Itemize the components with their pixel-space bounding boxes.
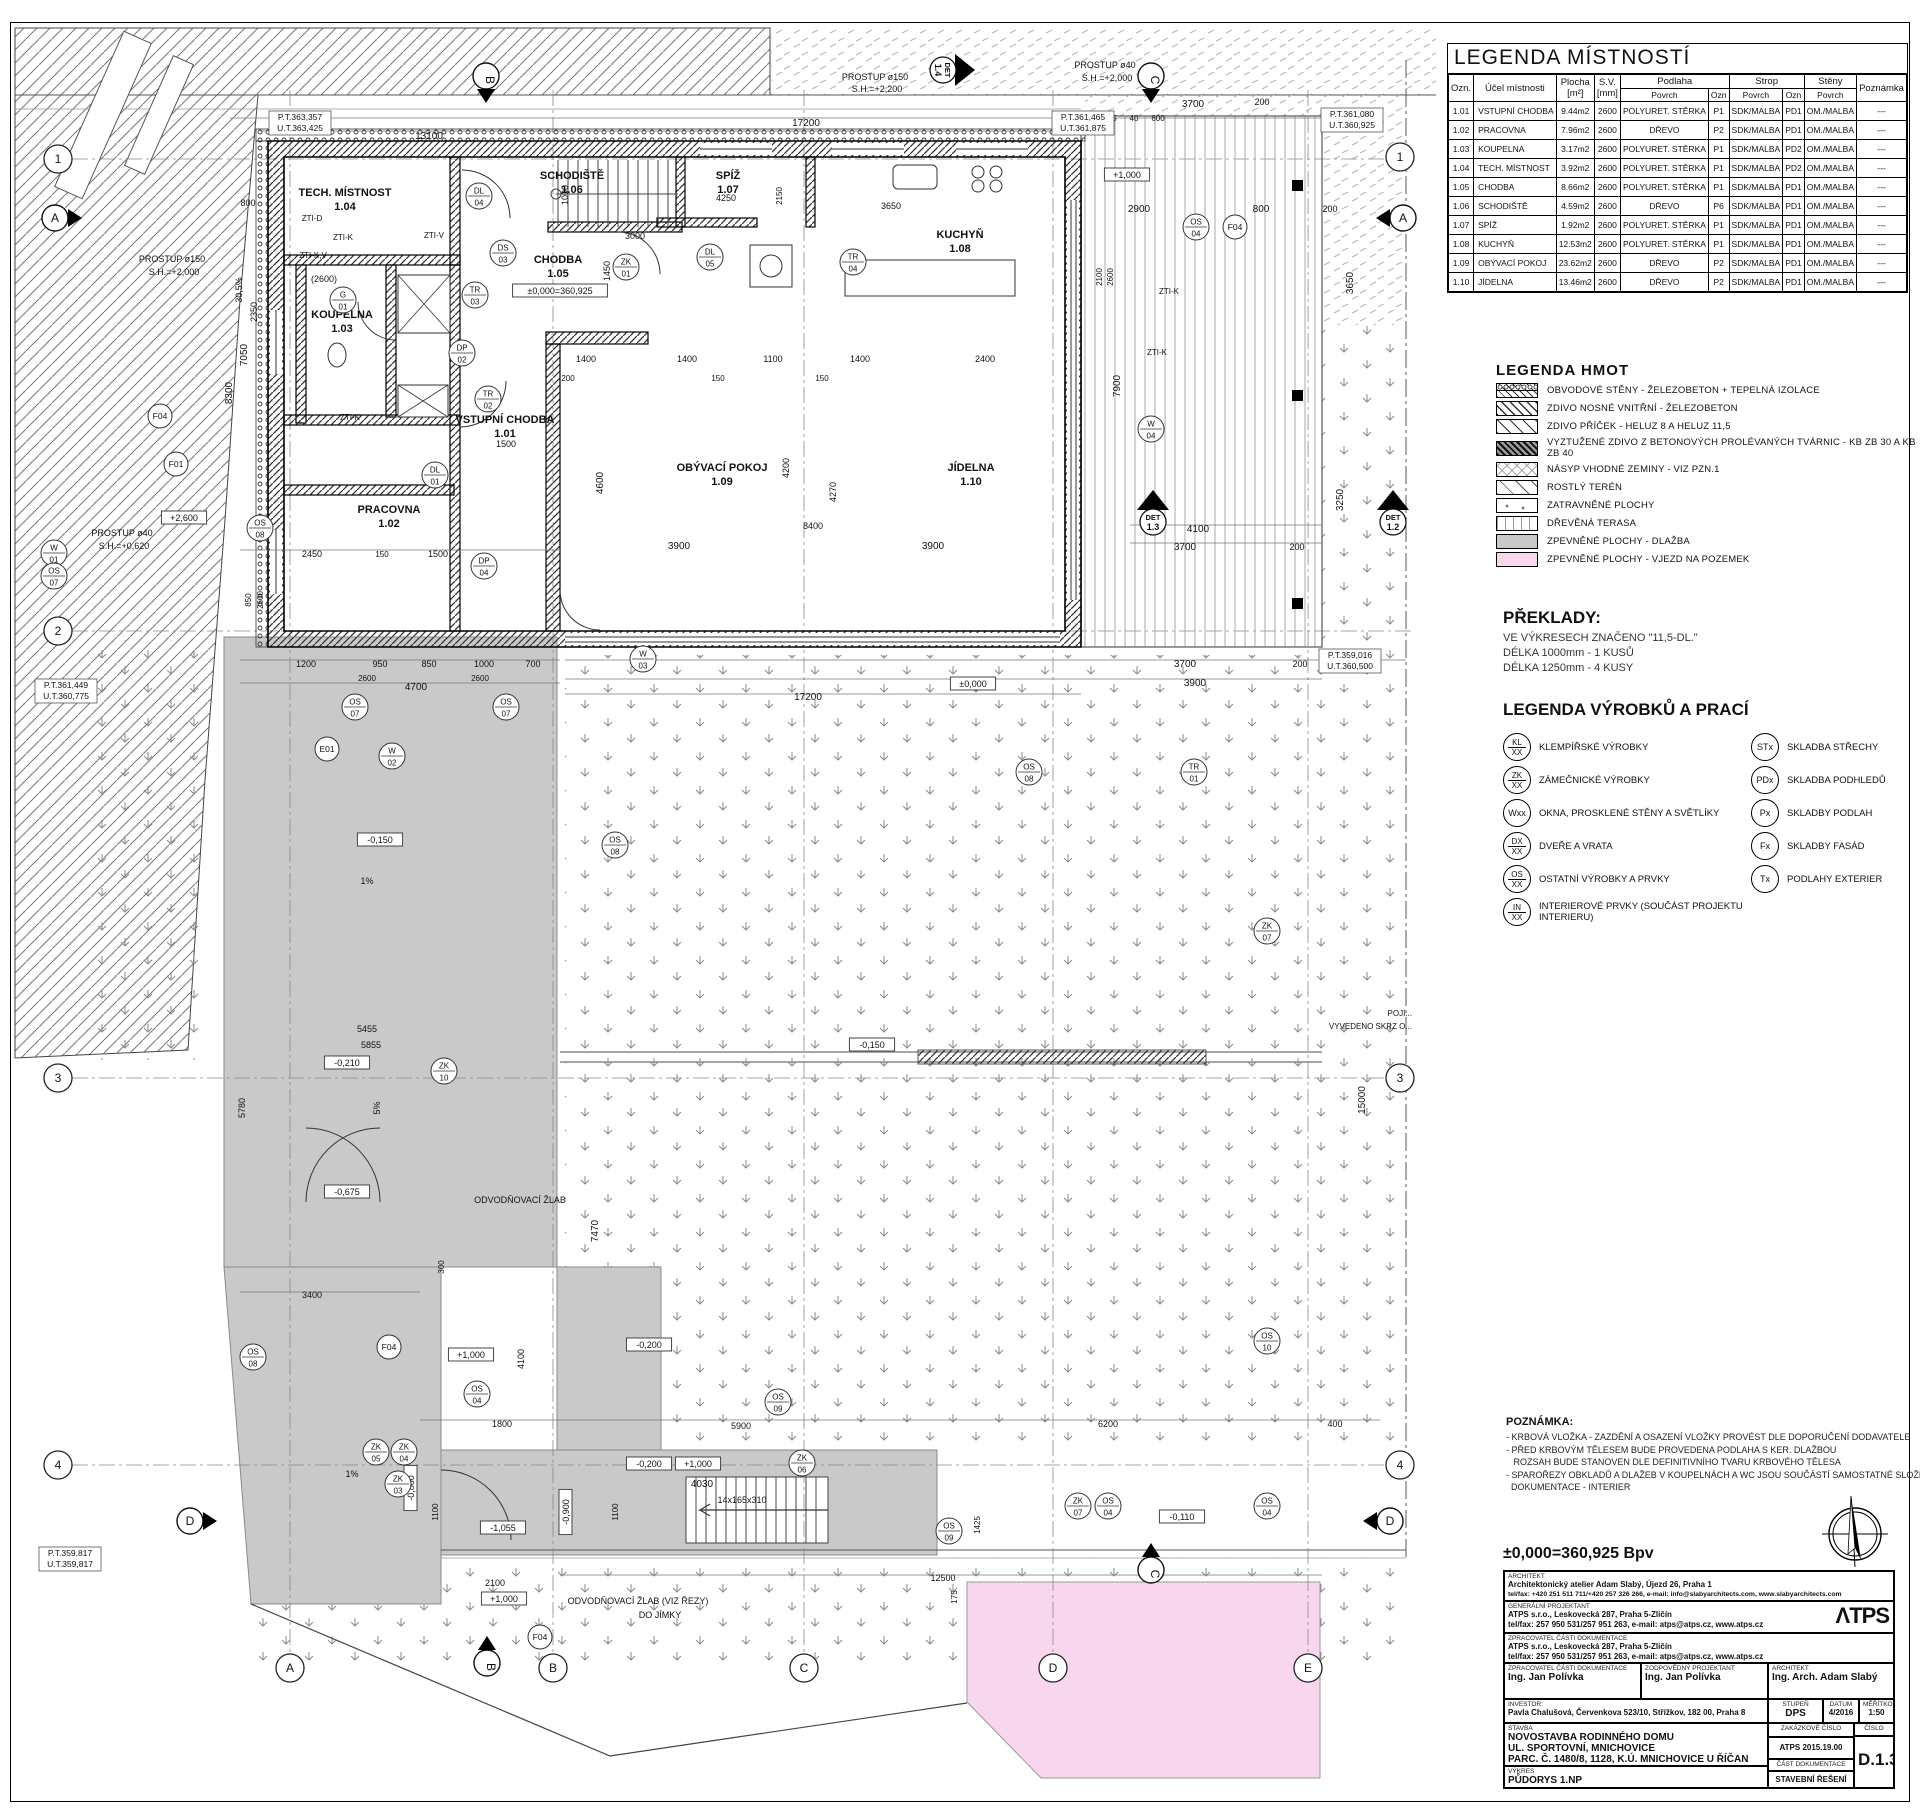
svg-text:04: 04 — [849, 265, 858, 274]
svg-text:-0,200: -0,200 — [636, 1459, 662, 1469]
material-legend-item: DŘEVĚNÁ TERASA — [1496, 516, 1916, 531]
svg-text:1.10: 1.10 — [960, 476, 981, 488]
svg-text:2600: 2600 — [471, 674, 489, 683]
svg-text:PROSTUP ø150: PROSTUP ø150 — [139, 254, 205, 264]
general-designer-line1: ATPS s.r.o., Leskovecká 287, Praha 5-Zli… — [1508, 1610, 1890, 1620]
svg-text:TR: TR — [1189, 763, 1200, 772]
svg-text:VYVEDENO SKRZ O...: VYVEDENO SKRZ O... — [1329, 1022, 1412, 1031]
svg-text:G: G — [340, 291, 346, 300]
sw-dlazba-swatch — [1496, 534, 1538, 549]
room-legend-row: 1.06SCHODIŠTĚ4.59m22600DŘEVOP6SDK/MALBAP… — [1449, 197, 1907, 216]
svg-text:04: 04 — [1263, 1509, 1272, 1518]
svg-text:-0,110: -0,110 — [1170, 1512, 1195, 1522]
svg-text:1400: 1400 — [576, 354, 596, 364]
svg-text:12500: 12500 — [930, 1573, 955, 1583]
datum-line: ±0,000=360,925 Bpv — [1503, 1545, 1654, 1563]
svg-text:5900: 5900 — [731, 1421, 751, 1431]
room-legend-row: 1.01VSTUPNÍ CHODBA9.44m22600POLYURET. ST… — [1449, 102, 1907, 121]
note-line: - PŘED KRBOVÝM TĚLESEM BUDE PROVEDENA PO… — [1506, 1444, 1916, 1457]
svg-text:1.02: 1.02 — [378, 518, 399, 530]
svg-text:150: 150 — [375, 550, 389, 559]
sw-pricka-swatch — [1496, 419, 1538, 434]
general-designer-label: GENERÁLNÍ PROJEKTANT — [1508, 1603, 1890, 1610]
svg-text:A: A — [51, 211, 59, 225]
svg-text:POJI...: POJI... — [1388, 1009, 1412, 1018]
svg-text:04: 04 — [400, 1455, 409, 1464]
svg-text:3700: 3700 — [1174, 659, 1197, 670]
svg-text:2450: 2450 — [302, 549, 322, 559]
svg-text:4600: 4600 — [595, 471, 606, 494]
svg-text:09: 09 — [945, 1534, 954, 1543]
svg-text:1100: 1100 — [611, 1503, 620, 1521]
product-legend-item: ZKXXZÁMEČNICKÉ VÝROBKY — [1503, 766, 1751, 794]
architect-name: Ing. Arch. Adam Slabý — [1772, 1672, 1890, 1683]
svg-text:PRACOVNA: PRACOVNA — [358, 504, 421, 516]
general-designer-line2: tel/fax: 257 950 531/257 951 263, e-mail… — [1508, 1620, 1890, 1630]
svg-text:08: 08 — [1025, 775, 1034, 784]
room-legend: LEGENDA MÍSTNOSTÍ Ozn. Účel místnosti Pl… — [1447, 43, 1908, 293]
note-line: - KRBOVÁ VLOŽKA - ZAZDĚNÍ A OSAZENÍ VLOŽ… — [1506, 1431, 1916, 1444]
scale-value: 1:50 — [1863, 1708, 1890, 1718]
svg-text:850: 850 — [244, 593, 253, 607]
svg-text:300: 300 — [437, 1260, 446, 1274]
svg-text:ZK: ZK — [371, 1443, 382, 1452]
svg-text:DP: DP — [478, 557, 489, 566]
svg-text:±0,000: ±0,000 — [959, 679, 986, 689]
svg-text:F04: F04 — [382, 1342, 397, 1352]
svg-text:ODVODŇOVACÍ ŽLAB (VIZ ŘEZY): ODVODŇOVACÍ ŽLAB (VIZ ŘEZY) — [568, 1596, 709, 1606]
col-poznamka: Poznámka — [1857, 75, 1907, 102]
svg-text:07: 07 — [1263, 934, 1272, 943]
svg-text:+1,000: +1,000 — [1113, 170, 1141, 180]
svg-text:3900: 3900 — [922, 541, 945, 552]
svg-text:5780: 5780 — [237, 1098, 247, 1118]
svg-text:PROSTUP ø40: PROSTUP ø40 — [1074, 60, 1135, 70]
svg-text:SPÍŽ: SPÍŽ — [716, 169, 741, 182]
svg-text:P.T.359,016: P.T.359,016 — [1328, 650, 1373, 660]
svg-text:950: 950 — [372, 659, 387, 669]
svg-text:1100: 1100 — [763, 354, 782, 364]
svg-text:TR: TR — [483, 390, 494, 399]
svg-text:E: E — [1304, 1661, 1312, 1675]
svg-text:8300: 8300 — [224, 381, 235, 404]
svg-text:F04: F04 — [1228, 222, 1243, 232]
svg-text:D: D — [1049, 1661, 1058, 1675]
svg-text:2600: 2600 — [1106, 268, 1115, 286]
product-legend-item: TxPODLAHY EXTERIER — [1751, 865, 1911, 893]
svg-text:850: 850 — [421, 659, 436, 669]
svg-text:800: 800 — [1253, 204, 1270, 215]
materials-legend: LEGENDA HMOT OBVODOVÉ STĚNY - ŽELEZOBETO… — [1496, 362, 1916, 570]
material-legend-item: ZDIVO NOSNÉ VNITŘNÍ - ŽELEZOBETON — [1496, 401, 1916, 416]
svg-text:5455: 5455 — [357, 1024, 377, 1034]
svg-text:07: 07 — [351, 710, 360, 719]
svg-text:4: 4 — [1397, 1458, 1404, 1472]
svg-text:1450: 1450 — [602, 261, 612, 281]
svg-text:6200: 6200 — [1098, 1419, 1118, 1429]
svg-text:2900: 2900 — [1128, 204, 1151, 215]
col-plocha: Plocha[m²] — [1556, 75, 1594, 102]
product-legend-item: STxSKLADBA STŘECHY — [1751, 733, 1911, 761]
col-sv: S.V.[mm] — [1594, 75, 1620, 102]
product-legend-item: INXXINTERIEROVÉ PRVKY (SOUČÁST PROJEKTU … — [1503, 898, 1751, 926]
svg-text:S.H.=+2,000: S.H.=+2,000 — [1082, 73, 1133, 83]
svg-text:10: 10 — [1263, 1344, 1272, 1353]
svg-text:OS: OS — [247, 1348, 259, 1357]
svg-text:2600: 2600 — [358, 674, 376, 683]
svg-text:4100: 4100 — [1187, 524, 1210, 535]
svg-text:4030: 4030 — [691, 1479, 714, 1490]
svg-text:-0,150: -0,150 — [367, 835, 393, 845]
svg-text:ZK: ZK — [1073, 1497, 1084, 1506]
svg-text:DL: DL — [430, 466, 441, 475]
svg-text:W: W — [1147, 420, 1155, 429]
svg-text:2350: 2350 — [249, 302, 259, 322]
symbol-circle-icon: DXXX — [1503, 832, 1531, 860]
svg-text:-0,210: -0,210 — [334, 1058, 360, 1068]
svg-text:OS: OS — [1261, 1332, 1273, 1341]
svg-text:800: 800 — [240, 198, 255, 208]
svg-text:ZK: ZK — [393, 1475, 404, 1484]
svg-text:3700: 3700 — [1174, 542, 1197, 553]
drawing-number: D.1.3 — [1858, 1738, 1890, 1782]
svg-text:KUCHYŇ: KUCHYŇ — [936, 228, 983, 241]
svg-text:01: 01 — [339, 303, 348, 312]
svg-text:03: 03 — [499, 256, 508, 265]
svg-text:3: 3 — [1397, 1071, 1404, 1085]
svg-text:1200: 1200 — [296, 659, 316, 669]
svg-text:3: 3 — [55, 1071, 62, 1085]
symbol-circle-icon: STx — [1751, 733, 1779, 761]
north-compass-icon — [1818, 1492, 1892, 1572]
svg-text:1000: 1000 — [474, 659, 494, 669]
svg-text:U.T.360,925: U.T.360,925 — [1329, 120, 1375, 130]
svg-text:3250: 3250 — [1335, 488, 1346, 511]
svg-text:OS: OS — [1190, 218, 1202, 227]
svg-text:2: 2 — [55, 624, 62, 638]
material-legend-item: OBVODOVÉ STĚNY - ŽELEZOBETON + TEPELNÁ I… — [1496, 383, 1916, 398]
svg-text:ZK: ZK — [621, 258, 632, 267]
responsible-designer-name: Ing. Jan Polívka — [1645, 1672, 1764, 1683]
svg-text:2100: 2100 — [485, 1578, 505, 1588]
svg-text:-0,900: -0,900 — [561, 1499, 571, 1525]
svg-text:OS: OS — [48, 567, 60, 576]
svg-text:200: 200 — [1254, 97, 1269, 107]
product-legend-item: OSXXOSTATNÍ VÝROBKY A PRVKY — [1503, 865, 1751, 893]
svg-text:200: 200 — [1289, 542, 1304, 552]
doc-section-name: STAVEBNÍ ŘEŠENÍ — [1772, 1773, 1850, 1786]
svg-text:D: D — [1386, 1514, 1395, 1528]
architect-label: ARCHITEKT — [1508, 1573, 1890, 1580]
doc-part-author-line1: ATPS s.r.o., Leskovecká 287, Praha 5-Zli… — [1508, 1642, 1890, 1652]
svg-text:B: B — [484, 1663, 498, 1671]
room-legend-row: 1.04TECH. MÍSTNOST3.92m22600POLYURET. ST… — [1449, 159, 1907, 178]
svg-text:200: 200 — [561, 374, 575, 383]
svg-text:1800: 1800 — [492, 1419, 512, 1429]
svg-text:04: 04 — [480, 569, 489, 578]
svg-text:1400: 1400 — [677, 354, 697, 364]
svg-text:1.3: 1.3 — [1147, 522, 1160, 532]
svg-text:2150: 2150 — [775, 187, 784, 205]
svg-text:A: A — [1399, 211, 1407, 225]
svg-text:DET: DET — [943, 63, 952, 78]
svg-text:30,5%: 30,5% — [234, 277, 244, 303]
svg-text:ZTI-K: ZTI-K — [1147, 348, 1168, 357]
svg-text:1.2: 1.2 — [1387, 522, 1400, 532]
svg-text:1.06: 1.06 — [561, 184, 582, 196]
symbol-circle-icon: KLXX — [1503, 733, 1531, 761]
svg-text:+1,000: +1,000 — [457, 1350, 485, 1360]
svg-text:3000: 3000 — [625, 231, 645, 241]
svg-text:C: C — [1148, 76, 1162, 85]
svg-text:7470: 7470 — [590, 1219, 601, 1242]
svg-text:DP: DP — [456, 344, 467, 353]
svg-text:P.T.359,817: P.T.359,817 — [48, 1548, 93, 1558]
svg-text:OBÝVACÍ POKOJ: OBÝVACÍ POKOJ — [677, 461, 768, 474]
sw-vjezd-swatch — [1496, 552, 1538, 567]
title-block: ARCHITEKT Architektonický atelier Adam S… — [1503, 1570, 1895, 1789]
svg-text:1425: 1425 — [973, 1516, 982, 1534]
room-legend-row: 1.02PRACOVNA7.96m22600DŘEVOP2SDK/MALBAPD… — [1449, 121, 1907, 140]
svg-text:03: 03 — [394, 1487, 403, 1496]
sw-zb-swatch — [1496, 401, 1538, 416]
svg-text:S.H.=+0,620: S.H.=+0,620 — [99, 541, 150, 551]
svg-text:4200: 4200 — [781, 458, 791, 478]
svg-text:PROSTUP ø40: PROSTUP ø40 — [91, 528, 152, 538]
svg-text:PROSTUP ø150: PROSTUP ø150 — [842, 72, 908, 82]
svg-text:05: 05 — [706, 260, 715, 269]
svg-text:01: 01 — [431, 478, 440, 487]
sw-nasyp-swatch — [1496, 462, 1538, 477]
svg-text:C: C — [800, 1661, 809, 1675]
svg-text:2600: 2600 — [256, 591, 265, 609]
svg-text:400: 400 — [1327, 1419, 1342, 1429]
svg-text:7900: 7900 — [1112, 374, 1123, 397]
svg-text:TR: TR — [848, 253, 859, 262]
svg-text:02: 02 — [388, 759, 397, 768]
project-line1: NOVOSTAVBA RODINNÉHO DOMU — [1508, 1732, 1764, 1743]
svg-text:U.T.361,875: U.T.361,875 — [1060, 123, 1106, 133]
room-legend-table: Ozn. Účel místnosti Plocha[m²] S.V.[mm] … — [1448, 74, 1907, 292]
svg-text:4700: 4700 — [405, 682, 428, 693]
svg-text:ZTI-K: ZTI-K — [340, 413, 361, 422]
svg-text:3650: 3650 — [1345, 271, 1356, 294]
room-legend-row: 1.07SPÍŽ1.92m22600POLYURET. STĚRKAP1SDK/… — [1449, 216, 1907, 235]
col-steny: Stěny — [1804, 75, 1856, 89]
svg-text:3700: 3700 — [1182, 99, 1205, 110]
svg-text:OS: OS — [609, 836, 621, 845]
svg-text:+2,600: +2,600 — [170, 513, 198, 523]
svg-text:8400: 8400 — [803, 521, 823, 531]
svg-text:05: 05 — [372, 1455, 381, 1464]
sw-kb-swatch — [1496, 441, 1538, 456]
svg-text:04: 04 — [1147, 432, 1156, 441]
svg-text:07: 07 — [502, 710, 511, 719]
svg-text:13100: 13100 — [415, 131, 443, 142]
svg-text:ODVODŇOVACÍ ŽLAB: ODVODŇOVACÍ ŽLAB — [474, 1195, 566, 1205]
svg-text:09: 09 — [774, 1405, 783, 1414]
material-legend-item: ROSTLÝ TERÉN — [1496, 480, 1916, 495]
svg-text:ZK: ZK — [1262, 922, 1273, 931]
svg-text:04: 04 — [475, 199, 484, 208]
symbol-circle-icon: INXX — [1503, 898, 1531, 926]
sw-terasa-swatch — [1496, 516, 1538, 531]
product-legend-item: KLXXKLEMPÍŘSKÉ VÝROBKY — [1503, 733, 1751, 761]
svg-text:3900: 3900 — [668, 541, 691, 552]
architect-line1: Architektonický atelier Adam Slabý, Újez… — [1508, 1580, 1890, 1590]
svg-text:-0,150: -0,150 — [859, 1040, 885, 1050]
svg-text:08: 08 — [611, 848, 620, 857]
svg-text:03: 03 — [639, 662, 648, 671]
svg-text:DET: DET — [1386, 513, 1401, 522]
svg-text:U.T.363,425: U.T.363,425 — [277, 123, 323, 133]
svg-text:14x165x310: 14x165x310 — [717, 1495, 766, 1505]
svg-text:02: 02 — [458, 356, 467, 365]
svg-text:3650: 3650 — [881, 201, 901, 211]
svg-text:JÍDELNA: JÍDELNA — [947, 461, 994, 474]
drawing-name: PŮDORYS 1.NP — [1508, 1775, 1764, 1786]
room-legend-row: 1.08KUCHYŇ12.53m22600POLYURET. STĚRKAP1S… — [1449, 235, 1907, 254]
svg-text:ZTI-K: ZTI-K — [333, 233, 354, 242]
svg-text:1100: 1100 — [431, 1503, 440, 1521]
svg-text:2100: 2100 — [1095, 268, 1104, 286]
doc-part-author-line2: tel/fax: 257 950 531/257 951 263, e-mail… — [1508, 1652, 1890, 1662]
svg-text:OS: OS — [1102, 1497, 1114, 1506]
svg-text:1500: 1500 — [428, 549, 448, 559]
job-number: ATPS 2015.19.00 — [1772, 1739, 1850, 1757]
lintels-title: PŘEKLADY: — [1503, 608, 1903, 628]
material-legend-item: ZATRAVNĚNÉ PLOCHY — [1496, 498, 1916, 513]
svg-text:01: 01 — [1190, 775, 1199, 784]
svg-text:U.T.359,817: U.T.359,817 — [47, 1559, 93, 1569]
svg-text:D: D — [186, 1514, 195, 1528]
svg-text:C: C — [1148, 1570, 1162, 1579]
stage-value: DPS — [1772, 1708, 1819, 1719]
svg-text:150: 150 — [815, 374, 829, 383]
svg-text:DL: DL — [474, 187, 485, 196]
svg-text:700: 700 — [525, 659, 540, 669]
material-legend-item: ZPEVNĚNÉ PLOCHY - VJEZD NA POZEMEK — [1496, 552, 1916, 567]
symbol-circle-icon: Px — [1751, 799, 1779, 827]
lintel-line: VE VÝKRESECH ZNAČENO "11,5-DL." — [1503, 631, 1903, 646]
svg-text:CHODBA: CHODBA — [534, 254, 582, 266]
materials-legend-title: LEGENDA HMOT — [1496, 362, 1916, 379]
room-legend-row: 1.09OBÝVACÍ POKOJ23.62m22600DŘEVOP2SDK/M… — [1449, 254, 1907, 273]
lintel-line: DÉLKA 1250mm - 4 KUSY — [1503, 661, 1903, 676]
svg-text:08: 08 — [249, 1360, 258, 1369]
product-legend-item: FxSKLADBY FASÁD — [1751, 832, 1911, 860]
svg-text:SCHODIŠTĚ: SCHODIŠTĚ — [540, 169, 604, 182]
svg-text:DL: DL — [705, 248, 716, 257]
svg-text:175: 175 — [950, 1590, 959, 1604]
svg-text:17200: 17200 — [792, 118, 820, 129]
svg-text:OS: OS — [349, 698, 361, 707]
svg-text:06: 06 — [798, 1466, 807, 1475]
symbol-circle-icon: Tx — [1751, 865, 1779, 893]
col-ozn: Ozn. — [1449, 75, 1474, 102]
svg-text:150: 150 — [711, 374, 725, 383]
svg-text:ZK: ZK — [399, 1443, 410, 1452]
svg-text:200: 200 — [1292, 659, 1307, 669]
svg-text:ZTI-D: ZTI-D — [302, 214, 323, 223]
lintel-line: DÉLKA 1000mm - 1 KUSŮ — [1503, 646, 1903, 661]
svg-text:VSTUPNÍ CHODBA: VSTUPNÍ CHODBA — [455, 413, 554, 426]
svg-text:1%: 1% — [360, 876, 373, 886]
svg-text:OS: OS — [1023, 763, 1035, 772]
svg-text:DS: DS — [497, 244, 508, 253]
svg-text:P.T.361,465: P.T.361,465 — [1061, 112, 1106, 122]
room-legend-title: LEGENDA MÍSTNOSTÍ — [1448, 44, 1907, 74]
project-line3: PARC. Č. 1480/8, 1128, K.Ú. MNICHOVICE U… — [1508, 1754, 1764, 1765]
svg-text:W: W — [50, 544, 58, 553]
sw-trava-swatch — [1496, 498, 1538, 513]
col-ucel: Účel místnosti — [1474, 75, 1557, 102]
col-strop: Strop — [1729, 75, 1804, 89]
material-legend-item: ZPEVNĚNÉ PLOCHY - DLAŽBA — [1496, 534, 1916, 549]
room-legend-row: 1.03KOUPELNA3.17m22600POLYURET. STĚRKAP1… — [1449, 140, 1907, 159]
sw-teren-swatch — [1496, 480, 1538, 495]
svg-text:07: 07 — [1074, 1509, 1083, 1518]
svg-text:E01: E01 — [319, 744, 334, 754]
svg-text:U.T.360,775: U.T.360,775 — [43, 691, 89, 701]
svg-text:DET: DET — [1146, 513, 1161, 522]
svg-text:04: 04 — [1104, 1509, 1113, 1518]
svg-text:04: 04 — [473, 1397, 482, 1406]
svg-text:600: 600 — [1151, 114, 1165, 123]
svg-text:1.05: 1.05 — [547, 268, 568, 280]
svg-text:P.T.363,357: P.T.363,357 — [278, 112, 323, 122]
svg-text:ZK: ZK — [439, 1062, 450, 1071]
symbol-circle-icon: Fx — [1751, 832, 1779, 860]
lintels-note: PŘEKLADY: VE VÝKRESECH ZNAČENO "11,5-DL.… — [1503, 608, 1903, 676]
svg-text:A: A — [286, 1661, 294, 1675]
svg-text:15000: 15000 — [1357, 1086, 1368, 1114]
svg-text:1400: 1400 — [850, 354, 870, 364]
svg-text:+1,000: +1,000 — [684, 1459, 712, 1469]
svg-text:07: 07 — [50, 579, 59, 588]
svg-text:F04: F04 — [533, 1632, 548, 1642]
doc-author-name: Ing. Jan Polívka — [1508, 1672, 1637, 1683]
svg-text:ZTI-K: ZTI-K — [1159, 287, 1180, 296]
material-legend-item: NÁSYP VHODNÉ ZEMINY - VIZ PZN.1 — [1496, 462, 1916, 477]
product-legend-item: PDxSKLADBA PODHLEDŮ — [1751, 766, 1911, 794]
svg-text:ZTI-V: ZTI-V — [424, 231, 445, 240]
product-legend-item: PxSKLADBY PODLAH — [1751, 799, 1911, 827]
svg-text:03: 03 — [471, 298, 480, 307]
svg-text:P.T.361,449: P.T.361,449 — [44, 680, 89, 690]
svg-text:02: 02 — [484, 402, 493, 411]
svg-text:200: 200 — [1322, 204, 1337, 214]
svg-text:(2600): (2600) — [311, 274, 337, 284]
svg-text:7050: 7050 — [239, 343, 250, 366]
doc-part-author-label: ZPRACOVATEL ČÁSTI DOKUMENTACE — [1508, 1635, 1890, 1642]
note-title: POZNÁMKA: — [1506, 1416, 1916, 1428]
svg-text:1.04: 1.04 — [334, 201, 356, 213]
svg-text:5%: 5% — [372, 1101, 382, 1114]
symbol-circle-icon: PDx — [1751, 766, 1779, 794]
svg-text:1500: 1500 — [496, 439, 516, 449]
svg-text:TR: TR — [470, 286, 481, 295]
svg-text:1%: 1% — [345, 1469, 358, 1479]
date-value: 4/2016 — [1827, 1708, 1855, 1718]
svg-text:P.T.361,080: P.T.361,080 — [1330, 109, 1375, 119]
products-legend-title: LEGENDA VÝROBKŮ A PRACÍ — [1503, 700, 1911, 720]
product-legend-item: WxxOKNA, PROSKLENÉ STĚNY A SVĚTLÍKY — [1503, 799, 1751, 827]
svg-text:S.H.=+2,200: S.H.=+2,200 — [852, 84, 903, 94]
svg-text:OS: OS — [500, 698, 512, 707]
svg-text:S.H.=+2,000: S.H.=+2,000 — [149, 267, 200, 277]
svg-text:5855: 5855 — [361, 1040, 381, 1050]
